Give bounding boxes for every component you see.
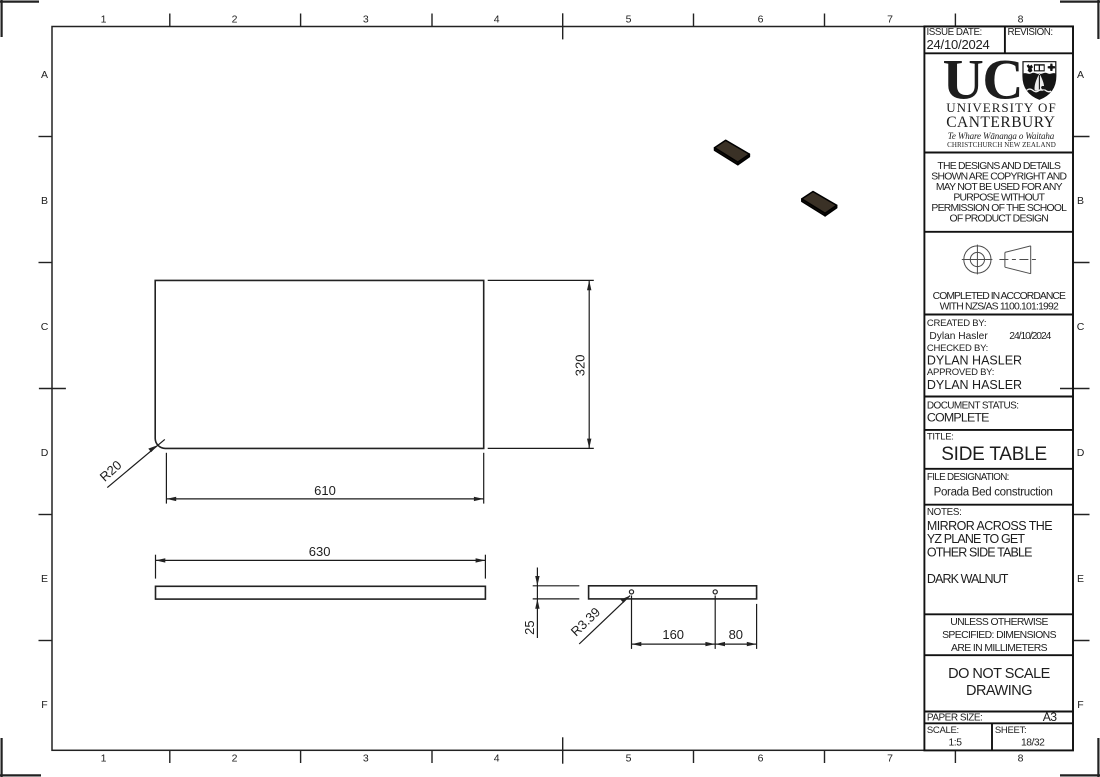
svg-text:4: 4: [494, 753, 500, 765]
svg-text:A: A: [1077, 69, 1084, 81]
svg-text:D: D: [41, 447, 49, 459]
svg-text:C: C: [1077, 321, 1085, 333]
svg-text:6: 6: [758, 13, 764, 25]
svg-text:PERMISSION OF THE SCHOOL: PERMISSION OF THE SCHOOL: [931, 203, 1067, 214]
svg-text:6: 6: [758, 753, 764, 765]
svg-text:5: 5: [626, 13, 632, 25]
svg-text:3: 3: [363, 753, 369, 765]
svg-text:Dylan Hasler: Dylan Hasler: [929, 331, 988, 342]
svg-text:B: B: [41, 195, 48, 207]
svg-text:COMPLETE: COMPLETE: [927, 410, 989, 424]
svg-text:SHOWN ARE COPYRIGHT AND: SHOWN ARE COPYRIGHT AND: [931, 172, 1066, 183]
svg-text:DYLAN HASLER: DYLAN HASLER: [927, 353, 1022, 367]
svg-text:E: E: [41, 573, 48, 585]
svg-text:Te Whare Wānanga o Waitaha: Te Whare Wānanga o Waitaha: [948, 131, 1055, 141]
svg-text:WITH NZS/AS 1100.101:1992: WITH NZS/AS 1100.101:1992: [940, 302, 1059, 313]
svg-text:REVISION:: REVISION:: [1008, 27, 1053, 38]
svg-text:THE DESIGNS AND DETAILS: THE DESIGNS AND DETAILS: [937, 161, 1061, 172]
svg-text:UNIVERSITY OF: UNIVERSITY OF: [946, 100, 1056, 115]
svg-text:25: 25: [522, 620, 537, 634]
svg-text:OF PRODUCT DESIGN: OF PRODUCT DESIGN: [950, 214, 1049, 225]
svg-text:D: D: [1077, 447, 1085, 459]
svg-text:7: 7: [887, 13, 893, 25]
svg-text:R3.39: R3.39: [568, 604, 603, 639]
svg-text:ARE IN MILLIMETERS: ARE IN MILLIMETERS: [951, 643, 1048, 654]
svg-text:160: 160: [662, 627, 684, 642]
svg-text:NOTES:: NOTES:: [927, 507, 962, 518]
svg-text:8: 8: [1018, 13, 1024, 25]
svg-text:UNLESS OTHERWISE: UNLESS OTHERWISE: [950, 617, 1048, 628]
svg-text:CANTERBURY: CANTERBURY: [946, 114, 1055, 131]
svg-text:CHRISTCHURCH NEW ZEALAND: CHRISTCHURCH NEW ZEALAND: [947, 141, 1056, 149]
svg-text:A: A: [41, 69, 48, 81]
svg-text:OTHER SIDE TABLE: OTHER SIDE TABLE: [927, 545, 1032, 559]
svg-text:PURPOSE WITHOUT: PURPOSE WITHOUT: [953, 193, 1045, 204]
svg-text:FILE DESIGNATION:: FILE DESIGNATION:: [927, 472, 1009, 483]
svg-text:PAPER SIZE:: PAPER SIZE:: [927, 713, 982, 724]
svg-text:24/10/2024: 24/10/2024: [1009, 331, 1051, 342]
svg-text:DYLAN HASLER: DYLAN HASLER: [927, 378, 1022, 392]
svg-text:1: 1: [101, 753, 107, 765]
svg-text:2: 2: [232, 13, 238, 25]
svg-text:1: 1: [101, 13, 107, 25]
svg-text:F: F: [41, 699, 47, 711]
svg-text:Porada Bed construction: Porada Bed construction: [934, 487, 1053, 499]
svg-text:2: 2: [232, 753, 238, 765]
svg-text:8: 8: [1018, 753, 1024, 765]
svg-text:E: E: [1077, 573, 1084, 585]
svg-text:DRAWING: DRAWING: [966, 683, 1032, 699]
svg-text:610: 610: [314, 483, 336, 498]
svg-text:1:5: 1:5: [948, 738, 962, 749]
svg-text:C: C: [41, 321, 49, 333]
svg-text:3: 3: [363, 13, 369, 25]
svg-text:TITLE:: TITLE:: [927, 432, 954, 443]
svg-text:SCALE:: SCALE:: [927, 725, 959, 736]
svg-text:YZ PLANE TO GET: YZ PLANE TO GET: [927, 532, 1025, 546]
svg-text:4: 4: [494, 13, 500, 25]
svg-text:SIDE TABLE: SIDE TABLE: [941, 444, 1047, 465]
svg-text:COMPLETED IN ACCORDANCE: COMPLETED IN ACCORDANCE: [933, 291, 1066, 302]
svg-text:5: 5: [626, 753, 632, 765]
svg-text:SHEET:: SHEET:: [995, 725, 1026, 736]
svg-text:A3: A3: [1043, 710, 1058, 724]
svg-text:DO NOT SCALE: DO NOT SCALE: [948, 666, 1051, 682]
svg-text:MIRROR ACROSS THE: MIRROR ACROSS THE: [927, 519, 1052, 533]
svg-text:MAY NOT BE USED FOR ANY: MAY NOT BE USED FOR ANY: [936, 182, 1063, 193]
svg-text:7: 7: [887, 753, 893, 765]
svg-text:DARK WALNUT: DARK WALNUT: [927, 572, 1009, 586]
svg-text:320: 320: [572, 355, 587, 377]
svg-text:B: B: [1077, 195, 1084, 207]
svg-text:APPROVED BY:: APPROVED BY:: [927, 367, 994, 378]
svg-text:F: F: [1077, 699, 1083, 711]
svg-text:CREATED BY:: CREATED BY:: [927, 318, 986, 329]
svg-text:80: 80: [729, 627, 743, 642]
svg-text:R20: R20: [97, 457, 125, 484]
svg-text:SPECIFIED: DIMENSIONS: SPECIFIED: DIMENSIONS: [942, 630, 1057, 641]
svg-text:18/32: 18/32: [1021, 738, 1045, 749]
svg-text:630: 630: [309, 544, 331, 559]
